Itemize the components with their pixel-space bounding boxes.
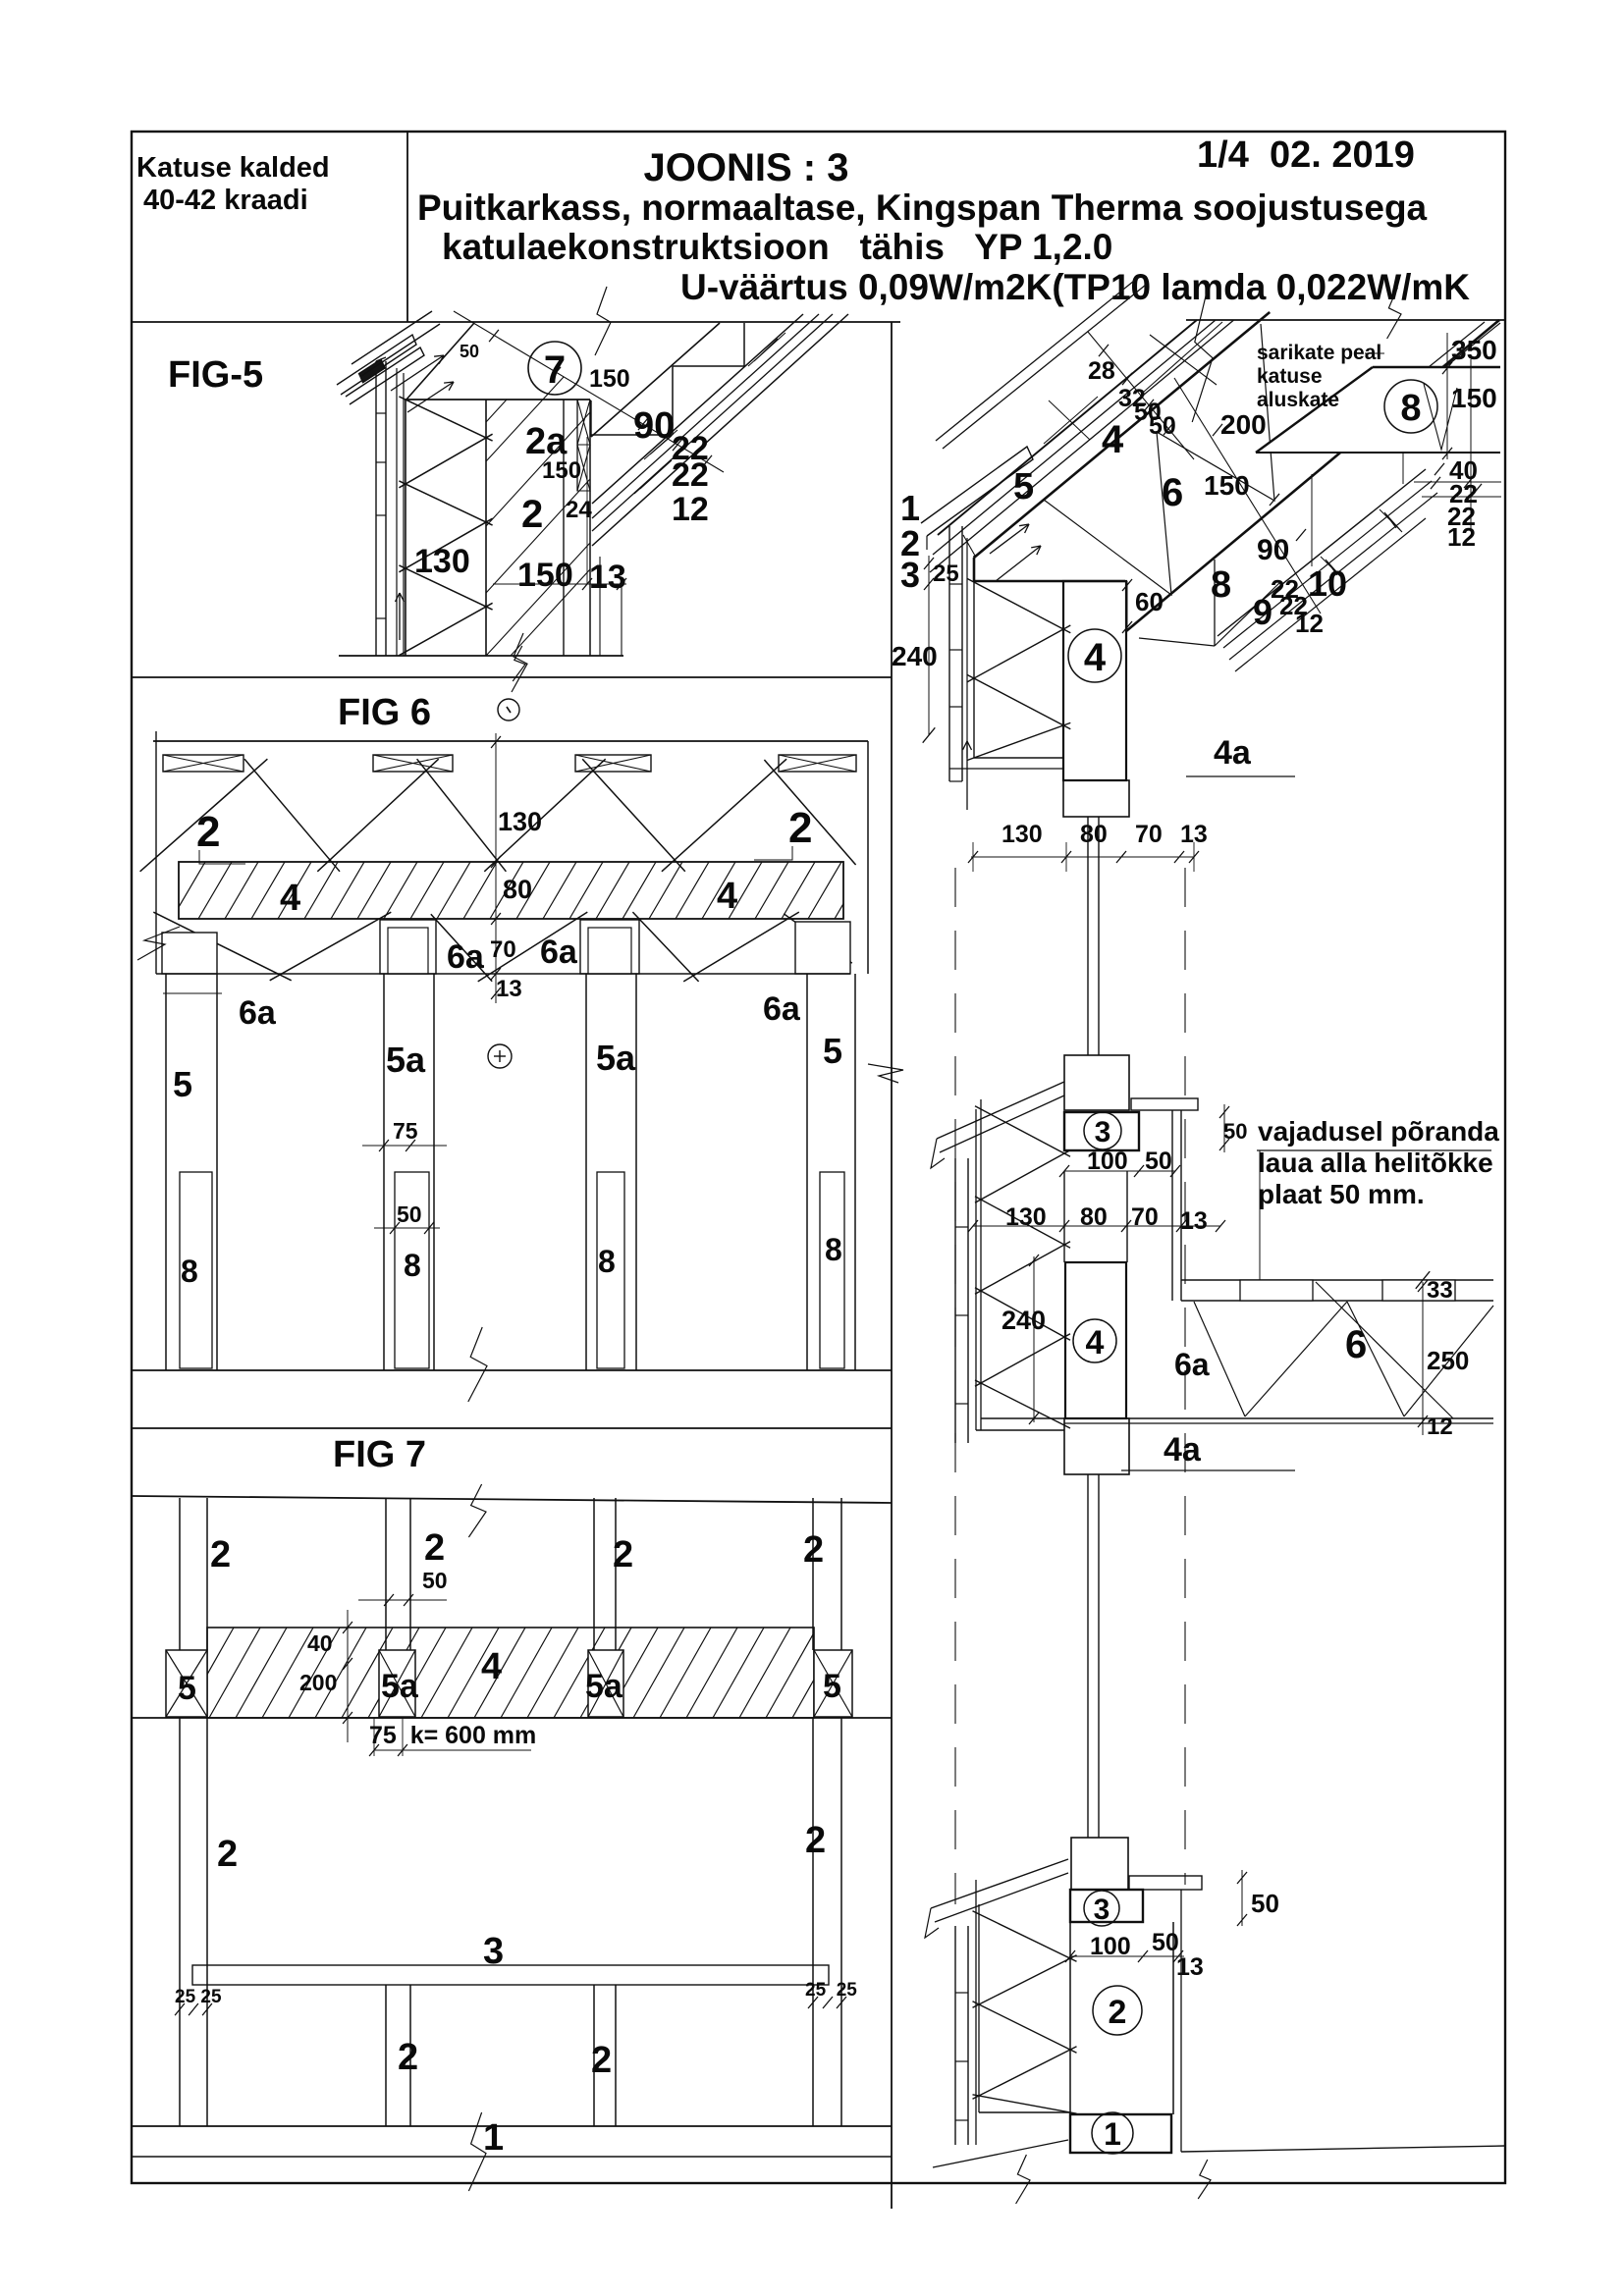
- svg-text:5: 5: [178, 1670, 196, 1707]
- svg-text:250: 250: [1427, 1346, 1469, 1375]
- svg-text:FIG-5: FIG-5: [168, 354, 263, 396]
- svg-text:4: 4: [1084, 636, 1107, 679]
- svg-text:90: 90: [1257, 534, 1289, 566]
- svg-text:2: 2: [613, 1534, 633, 1575]
- svg-text:50: 50: [397, 1201, 422, 1227]
- svg-text:1/4 02. 2019: 1/4 02. 2019: [1197, 134, 1415, 176]
- svg-text:50: 50: [1152, 1929, 1179, 1956]
- svg-text:U-väärtus 0,09W/m2K(TP10 lamda: U-väärtus 0,09W/m2K(TP10 lamda 0,022W/mK: [680, 267, 1470, 307]
- svg-text:5a: 5a: [585, 1668, 623, 1705]
- svg-text:sarikate peal: sarikate peal: [1257, 342, 1381, 364]
- svg-text:130: 130: [1001, 821, 1043, 848]
- svg-text:8: 8: [404, 1248, 421, 1283]
- svg-text:8: 8: [181, 1254, 198, 1289]
- svg-text:75: 75: [393, 1118, 418, 1144]
- svg-text:JOONIS : 3: JOONIS : 3: [644, 146, 849, 189]
- svg-text:200: 200: [1220, 409, 1267, 440]
- svg-text:150: 150: [542, 457, 581, 484]
- svg-text:6a: 6a: [239, 994, 277, 1032]
- svg-text:13: 13: [589, 559, 626, 596]
- svg-text:22: 22: [672, 456, 709, 494]
- svg-text:vajadusel põranda: vajadusel põranda: [1258, 1116, 1499, 1147]
- svg-text:3: 3: [1094, 1894, 1110, 1926]
- svg-text:5: 5: [823, 1031, 842, 1071]
- svg-text:25: 25: [933, 561, 959, 587]
- svg-text:6a: 6a: [763, 990, 801, 1028]
- svg-text:3: 3: [900, 555, 920, 595]
- svg-text:2: 2: [788, 804, 812, 852]
- svg-text:240: 240: [892, 641, 938, 671]
- svg-text:200: 200: [299, 1670, 337, 1695]
- svg-text:130: 130: [498, 807, 542, 836]
- svg-text:3: 3: [1095, 1116, 1111, 1148]
- svg-text:4: 4: [1086, 1324, 1105, 1362]
- svg-text:130: 130: [414, 543, 470, 580]
- svg-text:1: 1: [1104, 2116, 1121, 2152]
- svg-text:6a: 6a: [540, 934, 578, 971]
- svg-text:2: 2: [1109, 1994, 1127, 2031]
- svg-text:6a: 6a: [447, 938, 485, 976]
- svg-text:4: 4: [1102, 418, 1124, 461]
- svg-text:13: 13: [1180, 1207, 1208, 1235]
- svg-text:2: 2: [591, 2040, 612, 2081]
- svg-text:FIG 6: FIG 6: [338, 692, 431, 733]
- svg-text:katuse: katuse: [1257, 365, 1323, 388]
- svg-text:Puitkarkass, normaaltase, King: Puitkarkass, normaaltase, Kingspan Therm…: [417, 187, 1428, 228]
- svg-text:6: 6: [1162, 471, 1183, 514]
- svg-text:5: 5: [823, 1668, 841, 1705]
- svg-text:Katuse kalded: Katuse kalded: [136, 152, 330, 184]
- svg-text:1: 1: [483, 2117, 504, 2159]
- svg-text:60: 60: [1135, 587, 1164, 616]
- svg-text:6: 6: [1345, 1323, 1367, 1366]
- svg-text:12: 12: [1447, 522, 1476, 552]
- svg-text:1: 1: [900, 488, 920, 528]
- svg-text:2: 2: [803, 1529, 824, 1571]
- svg-text:2: 2: [424, 1527, 445, 1569]
- svg-text:150: 150: [589, 365, 630, 393]
- svg-text:katulaekonstruktsioon tähis: katulaekonstruktsioon tähis YP 1,2.0: [442, 227, 1112, 267]
- svg-text:2: 2: [398, 2037, 418, 2078]
- svg-text:40-42 kraadi: 40-42 kraadi: [143, 185, 308, 216]
- svg-text:5a: 5a: [386, 1040, 426, 1080]
- svg-text:70: 70: [1131, 1203, 1159, 1231]
- svg-text:8: 8: [598, 1244, 616, 1279]
- svg-text:12: 12: [1295, 609, 1324, 638]
- svg-text:28: 28: [1088, 357, 1115, 385]
- svg-text:70: 70: [1135, 821, 1163, 848]
- svg-text:150: 150: [517, 557, 573, 594]
- svg-text:12: 12: [1427, 1414, 1453, 1440]
- svg-text:3: 3: [483, 1931, 504, 1972]
- svg-text:40: 40: [307, 1630, 333, 1656]
- svg-text:50: 50: [1149, 412, 1176, 440]
- svg-text:2: 2: [521, 493, 543, 536]
- svg-text:laua alla helitõkke: laua alla helitõkke: [1258, 1148, 1493, 1178]
- svg-text:4: 4: [717, 876, 737, 917]
- svg-text:4a: 4a: [1214, 734, 1252, 772]
- svg-text:FIG 7: FIG 7: [333, 1434, 426, 1475]
- svg-text:2: 2: [805, 1820, 826, 1861]
- svg-text:130: 130: [1005, 1203, 1047, 1231]
- svg-text:5: 5: [1013, 466, 1034, 507]
- svg-text:plaat 50 mm.: plaat 50 mm.: [1258, 1179, 1425, 1209]
- svg-text:50: 50: [1223, 1119, 1247, 1144]
- svg-text:8: 8: [825, 1232, 842, 1267]
- svg-text:4a: 4a: [1164, 1431, 1202, 1468]
- svg-text:24: 24: [566, 497, 592, 523]
- svg-text:5a: 5a: [596, 1038, 636, 1078]
- svg-text:4: 4: [481, 1646, 502, 1687]
- svg-text:80: 80: [1080, 821, 1108, 848]
- svg-text:13: 13: [496, 976, 522, 1002]
- svg-text:8: 8: [1400, 388, 1421, 429]
- svg-text:13: 13: [1176, 1953, 1204, 1981]
- svg-text:4: 4: [280, 878, 300, 919]
- svg-text:5: 5: [173, 1064, 192, 1104]
- svg-text:33: 33: [1427, 1277, 1453, 1304]
- svg-text:5a: 5a: [381, 1668, 419, 1705]
- svg-text:150: 150: [1204, 470, 1250, 501]
- svg-text:2: 2: [217, 1834, 238, 1875]
- svg-text:150: 150: [1451, 383, 1497, 413]
- svg-text:aluskate: aluskate: [1257, 389, 1339, 411]
- svg-text:10: 10: [1308, 563, 1347, 604]
- svg-text:6a: 6a: [1174, 1347, 1210, 1382]
- svg-text:75 k= 600 mm: 75 k= 600 mm: [369, 1722, 536, 1749]
- svg-text:240: 240: [1001, 1306, 1046, 1335]
- svg-text:350: 350: [1451, 335, 1497, 365]
- svg-text:50: 50: [1251, 1889, 1279, 1918]
- svg-text:50: 50: [422, 1568, 448, 1593]
- svg-text:8: 8: [1211, 564, 1231, 606]
- svg-text:2a: 2a: [525, 421, 568, 462]
- svg-text:12: 12: [672, 491, 709, 528]
- svg-text:7: 7: [544, 348, 566, 392]
- svg-text:50: 50: [460, 342, 479, 361]
- svg-text:9: 9: [1253, 592, 1272, 632]
- svg-text:2: 2: [196, 808, 220, 856]
- svg-text:2: 2: [210, 1534, 231, 1575]
- svg-text:90: 90: [633, 405, 675, 447]
- svg-text:80: 80: [1080, 1203, 1108, 1231]
